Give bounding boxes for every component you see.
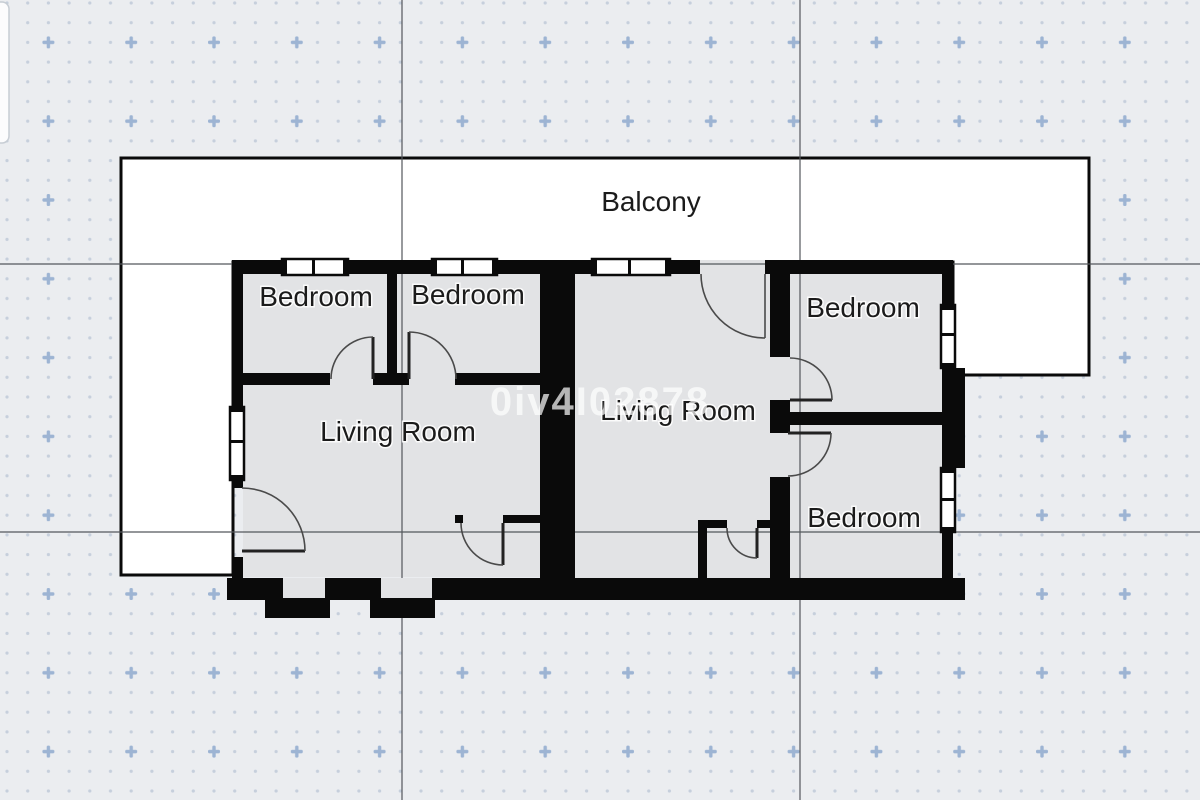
room-label-bedroom-top-left: Bedroom [259, 281, 373, 312]
doorway-gap [330, 373, 373, 385]
wall-interior[interactable] [770, 260, 790, 357]
room-label-bedroom-top-middle: Bedroom [411, 279, 525, 310]
wall-bottom[interactable] [227, 578, 965, 600]
doorway-gap [700, 260, 765, 274]
room-label-living-room-left: Living Room [320, 416, 476, 447]
room-label-bedroom-top-right: Bedroom [806, 292, 920, 323]
balcony-label: Balcony [601, 186, 701, 217]
window-top-3[interactable] [592, 259, 670, 275]
wall-stub[interactable] [455, 515, 463, 523]
wall-right[interactable] [942, 368, 965, 468]
window-right-1[interactable] [941, 305, 955, 368]
wall-interior[interactable] [770, 400, 790, 433]
window-left[interactable] [230, 407, 244, 480]
doorway-gap [770, 357, 790, 400]
wall-interior[interactable] [373, 373, 409, 385]
crenellation-tooth [265, 598, 330, 618]
crenellation-notch [381, 578, 432, 600]
floor-plan-canvas[interactable]: Balcony Bedroom Bedroom Living Room Livi… [0, 0, 1200, 800]
wall-central-spine[interactable] [540, 260, 575, 600]
room-label-bedroom-bottom-right: Bedroom [807, 502, 921, 533]
wall-right[interactable] [942, 260, 953, 305]
wall-right[interactable] [942, 532, 953, 580]
wall-stub[interactable] [698, 520, 727, 528]
wall-bedroom-divider[interactable] [387, 274, 397, 373]
wall-stub[interactable] [757, 520, 770, 528]
watermark-text: 0iv4I02878 [490, 380, 710, 424]
wall-top[interactable] [765, 260, 952, 274]
window-right-2[interactable] [941, 468, 955, 532]
wall-interior[interactable] [790, 412, 943, 425]
wall-interior[interactable] [233, 373, 330, 385]
wall-stub[interactable] [698, 520, 707, 578]
window-top-1[interactable] [282, 259, 348, 275]
panel-edge [0, 2, 9, 143]
crenellation-notch [283, 578, 325, 600]
wall-stub[interactable] [503, 515, 540, 523]
window-top-2[interactable] [432, 259, 497, 275]
doorway-gap [409, 373, 455, 385]
crenellation-tooth [370, 598, 435, 618]
doorway-gap [770, 433, 790, 477]
